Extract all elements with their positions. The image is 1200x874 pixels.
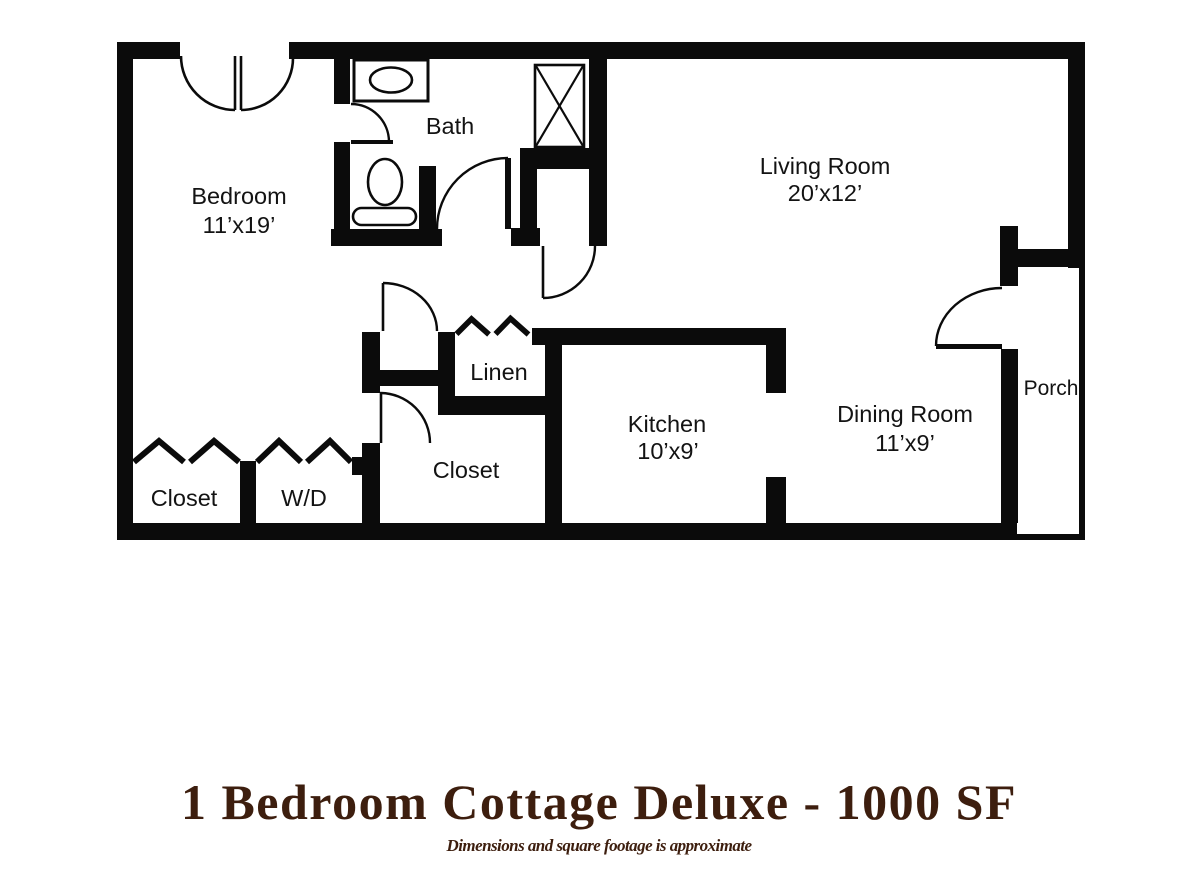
svg-text:Dimensions and square footage: Dimensions and square footage is approxi…: [446, 836, 753, 855]
svg-text:Closet: Closet: [151, 485, 218, 511]
svg-text:11’x19’: 11’x19’: [203, 212, 276, 238]
svg-text:Living Room: Living Room: [760, 153, 891, 179]
svg-text:Bath: Bath: [426, 113, 474, 139]
svg-text:1 Bedroom Cottage Deluxe - 100: 1 Bedroom Cottage Deluxe - 1000 SF: [181, 774, 1017, 830]
svg-text:W/D: W/D: [281, 485, 327, 511]
svg-text:Closet: Closet: [433, 457, 500, 483]
svg-text:Linen: Linen: [470, 359, 528, 385]
svg-text:10’x9’: 10’x9’: [637, 438, 698, 464]
svg-text:Porch: Porch: [1024, 377, 1079, 400]
svg-text:Dining Room: Dining Room: [837, 401, 973, 427]
svg-text:11’x9’: 11’x9’: [875, 430, 935, 456]
svg-text:Bedroom: Bedroom: [191, 183, 286, 209]
svg-text:Kitchen: Kitchen: [628, 411, 706, 437]
svg-text:20’x12’: 20’x12’: [788, 180, 862, 206]
